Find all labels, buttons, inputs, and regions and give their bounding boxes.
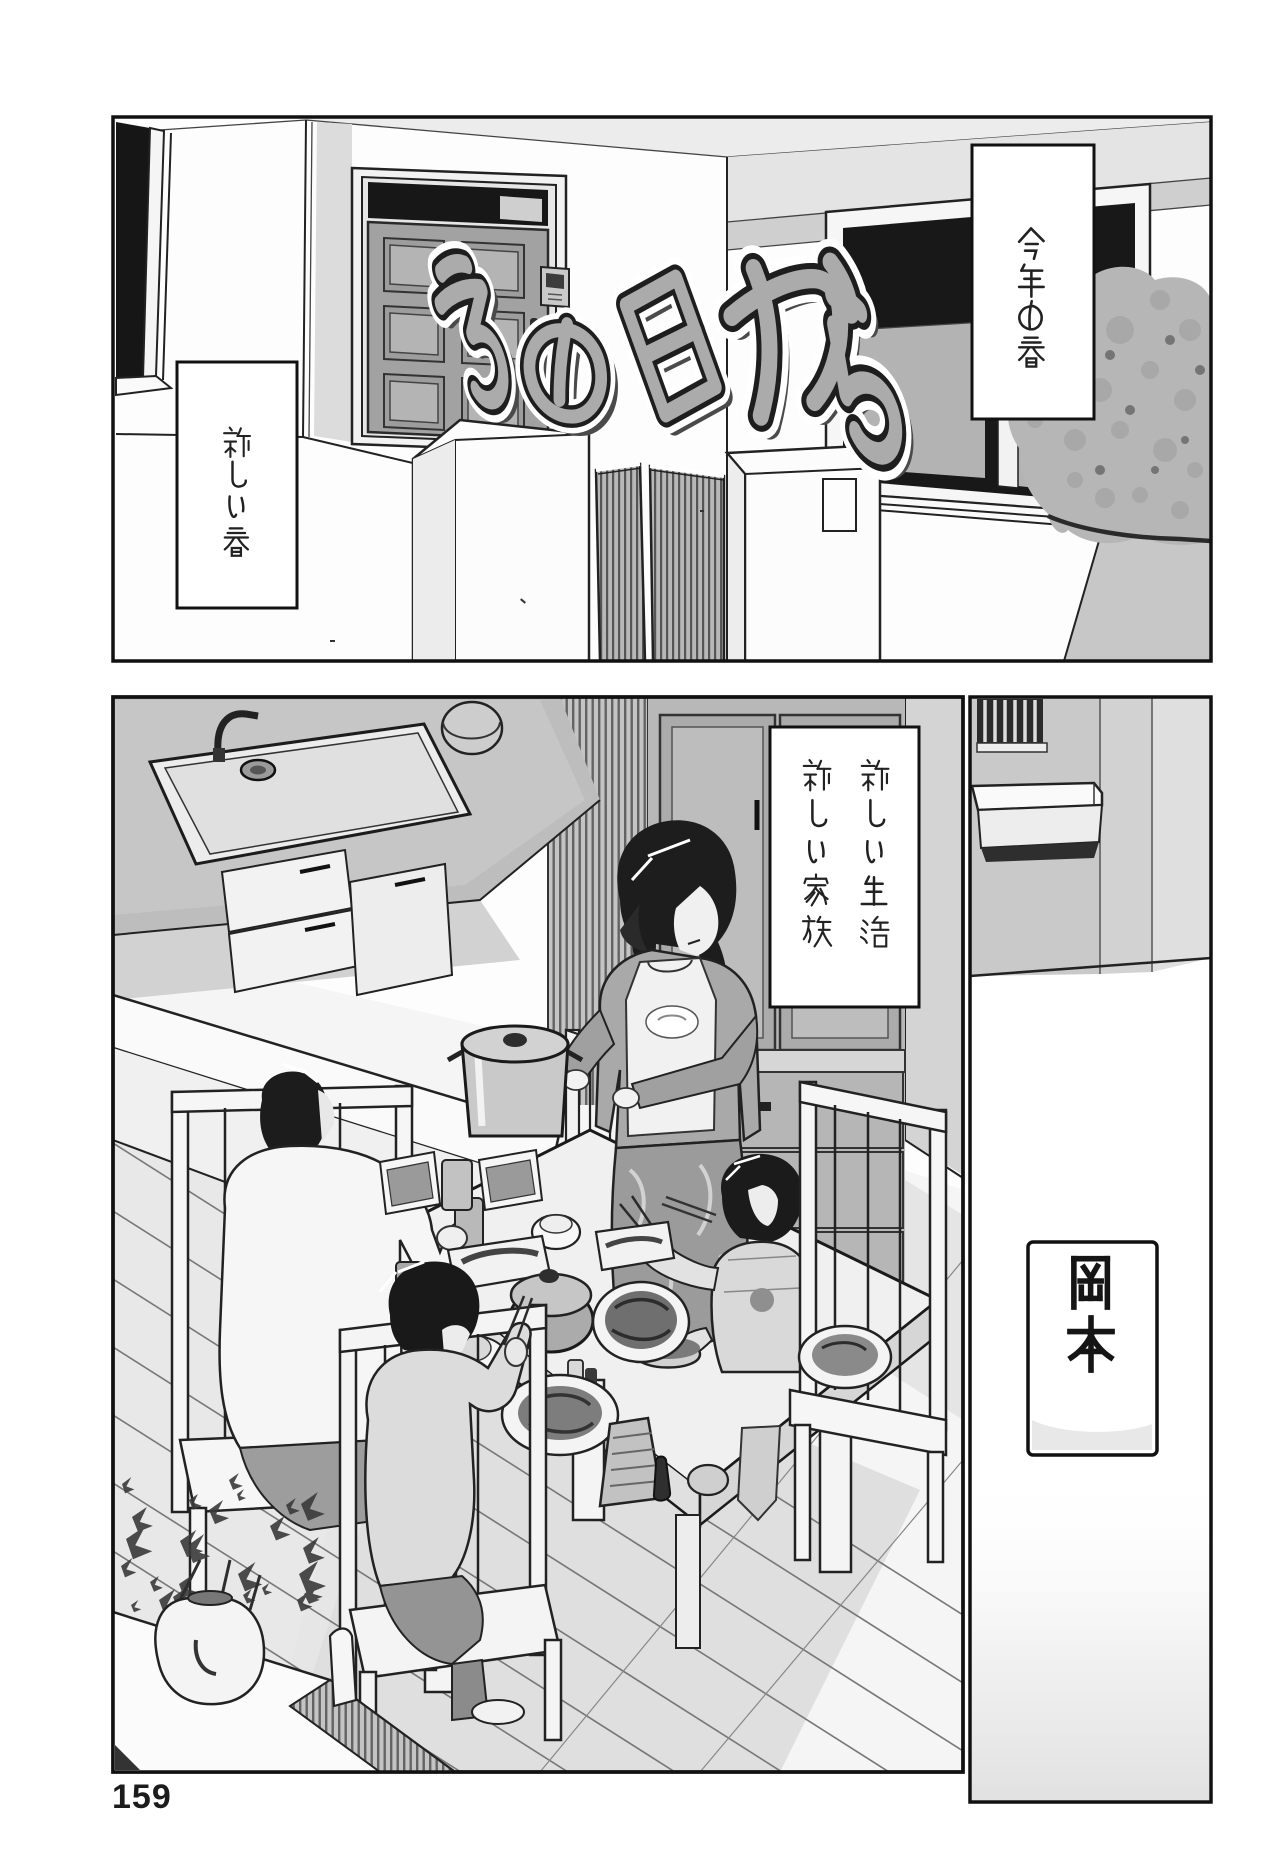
svg-text:159: 159 <box>112 1778 172 1816</box>
